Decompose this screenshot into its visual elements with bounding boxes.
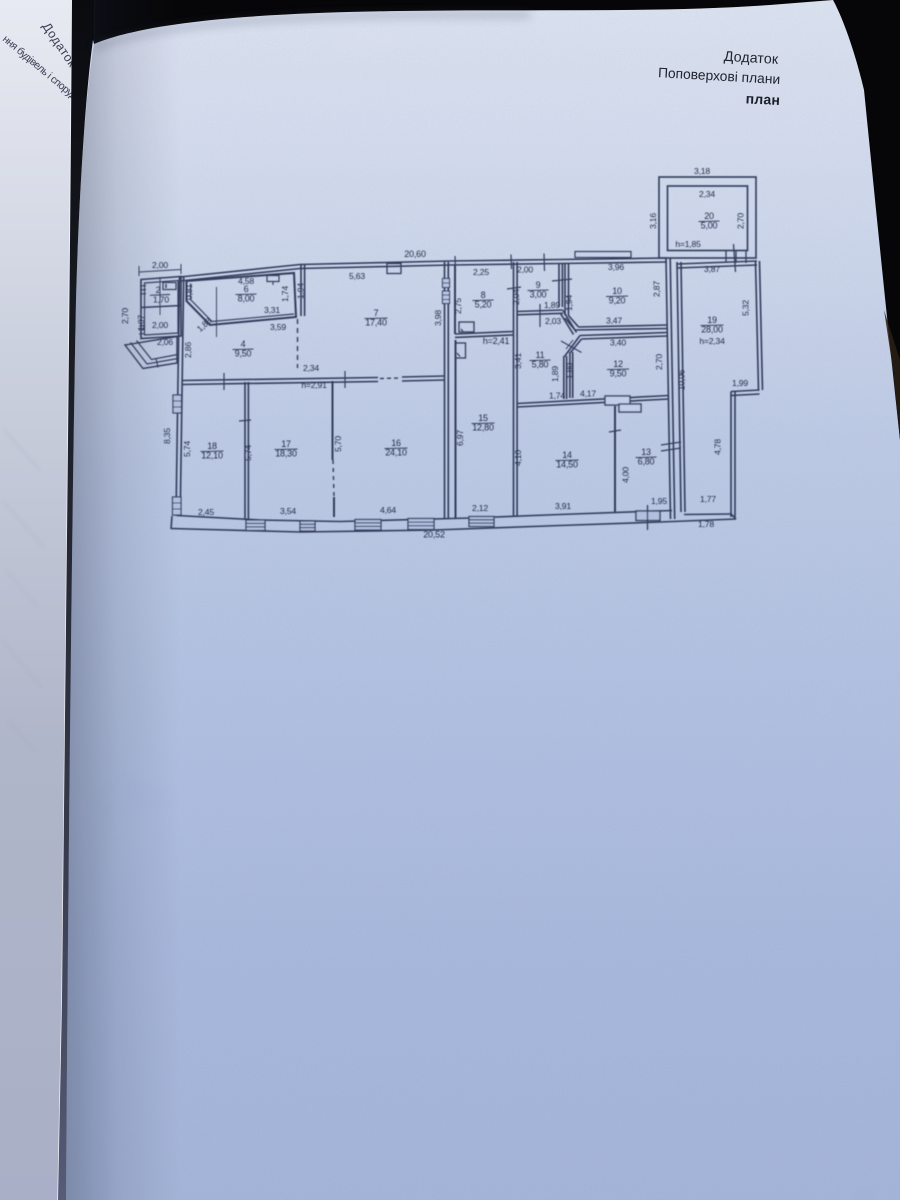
svg-text:h=2,41: h=2,41 <box>483 336 510 346</box>
svg-text:12,80: 12,80 <box>472 423 494 433</box>
svg-text:4,17: 4,17 <box>580 389 596 399</box>
svg-text:2,75: 2,75 <box>453 298 463 314</box>
svg-text:19: 19 <box>707 315 717 325</box>
svg-text:1,77: 1,77 <box>700 494 716 504</box>
svg-text:1,89: 1,89 <box>544 300 560 310</box>
svg-text:9,20: 9,20 <box>609 296 626 306</box>
svg-text:13: 13 <box>641 447 651 457</box>
svg-text:2,04: 2,04 <box>511 289 521 305</box>
svg-text:8,00: 8,00 <box>238 294 255 304</box>
svg-text:5,32: 5,32 <box>741 300 751 316</box>
svg-text:3,54: 3,54 <box>280 506 296 516</box>
svg-text:8: 8 <box>481 290 486 300</box>
svg-text:3,40: 3,40 <box>610 338 626 348</box>
svg-text:28,00: 28,00 <box>701 325 723 335</box>
svg-text:10: 10 <box>612 286 622 296</box>
svg-text:3,31: 3,31 <box>264 305 280 315</box>
svg-text:17,40: 17,40 <box>365 318 387 328</box>
svg-text:2,34: 2,34 <box>303 363 319 373</box>
svg-text:1,89: 1,89 <box>550 366 560 382</box>
svg-text:5,74: 5,74 <box>243 445 253 461</box>
svg-text:2,70: 2,70 <box>120 308 130 324</box>
svg-text:3,96: 3,96 <box>608 262 624 272</box>
svg-text:6,80: 6,80 <box>638 457 655 467</box>
svg-text:2,70: 2,70 <box>654 354 664 370</box>
svg-text:20,52: 20,52 <box>423 530 445 540</box>
svg-text:4,58: 4,58 <box>238 276 254 286</box>
svg-text:14: 14 <box>562 450 572 460</box>
svg-text:2,00: 2,00 <box>517 265 533 275</box>
svg-text:2,00: 2,00 <box>152 260 168 270</box>
svg-text:Додаток: Додаток <box>723 49 779 68</box>
svg-text:3,59: 3,59 <box>270 322 286 332</box>
svg-text:5,74: 5,74 <box>182 441 192 457</box>
svg-text:0,81: 0,81 <box>184 284 194 300</box>
svg-text:1,74: 1,74 <box>549 391 565 401</box>
svg-text:9,50: 9,50 <box>235 349 252 359</box>
svg-text:18: 18 <box>207 441 217 451</box>
svg-text:1,99: 1,99 <box>732 378 748 388</box>
svg-text:16: 16 <box>391 438 401 448</box>
svg-text:12,10: 12,10 <box>201 451 223 461</box>
svg-text:h=1,85: h=1,85 <box>675 239 701 249</box>
svg-text:1,95: 1,95 <box>651 496 667 506</box>
svg-text:1,94: 1,94 <box>564 295 574 311</box>
svg-text:2,70: 2,70 <box>736 213 746 229</box>
svg-text:6,97: 6,97 <box>455 430 465 446</box>
svg-text:8,35: 8,35 <box>162 428 172 444</box>
svg-text:24,10: 24,10 <box>385 448 407 458</box>
svg-text:3,98: 3,98 <box>433 310 443 326</box>
svg-text:4: 4 <box>241 339 246 349</box>
svg-text:15: 15 <box>478 413 488 423</box>
svg-text:3,87: 3,87 <box>704 264 720 274</box>
svg-text:4,64: 4,64 <box>380 505 396 515</box>
svg-text:2,87: 2,87 <box>652 281 662 297</box>
svg-text:4,78: 4,78 <box>713 439 723 455</box>
svg-text:5,00: 5,00 <box>701 221 718 231</box>
svg-text:9,50: 9,50 <box>610 369 627 379</box>
svg-text:4,10: 4,10 <box>513 450 523 466</box>
svg-text:14,50: 14,50 <box>556 460 578 470</box>
svg-text:5,80: 5,80 <box>532 360 549 370</box>
svg-text:18,30: 18,30 <box>275 449 297 459</box>
svg-text:1,70: 1,70 <box>153 295 169 305</box>
svg-text:5,70: 5,70 <box>333 436 343 452</box>
svg-text:2,25: 2,25 <box>473 267 489 277</box>
svg-text:2,45: 2,45 <box>198 507 214 517</box>
svg-text:3,47: 3,47 <box>606 316 622 326</box>
svg-text:1,80: 1,80 <box>565 363 575 379</box>
svg-text:20: 20 <box>704 211 714 221</box>
svg-text:3,16: 3,16 <box>648 213 658 229</box>
svg-text:план: план <box>745 90 780 108</box>
svg-text:2,12: 2,12 <box>472 503 488 513</box>
svg-text:11: 11 <box>536 350 545 360</box>
svg-text:5,20: 5,20 <box>475 300 492 310</box>
svg-text:1,74: 1,74 <box>280 286 290 302</box>
svg-text:20,60: 20,60 <box>404 249 426 259</box>
svg-text:12: 12 <box>613 359 623 369</box>
svg-text:4,00: 4,00 <box>621 467 631 483</box>
svg-text:1,07: 1,07 <box>136 315 146 331</box>
svg-text:2,34: 2,34 <box>699 189 715 199</box>
svg-text:7: 7 <box>374 308 379 318</box>
svg-text:10,06: 10,06 <box>677 369 687 390</box>
svg-text:3,00: 3,00 <box>530 290 547 300</box>
svg-text:h=2,34: h=2,34 <box>699 336 725 346</box>
svg-text:3,91: 3,91 <box>555 501 571 511</box>
svg-text:9: 9 <box>536 280 541 290</box>
svg-text:2,86: 2,86 <box>183 342 193 358</box>
svg-text:2,03: 2,03 <box>545 316 561 326</box>
svg-text:3,41: 3,41 <box>513 353 523 369</box>
svg-text:5,63: 5,63 <box>349 271 365 281</box>
svg-text:1,78: 1,78 <box>698 519 714 529</box>
svg-text:17: 17 <box>281 439 291 449</box>
svg-text:2,00: 2,00 <box>152 320 168 330</box>
svg-text:h=2,91: h=2,91 <box>301 380 327 390</box>
svg-text:3,18: 3,18 <box>694 166 710 176</box>
